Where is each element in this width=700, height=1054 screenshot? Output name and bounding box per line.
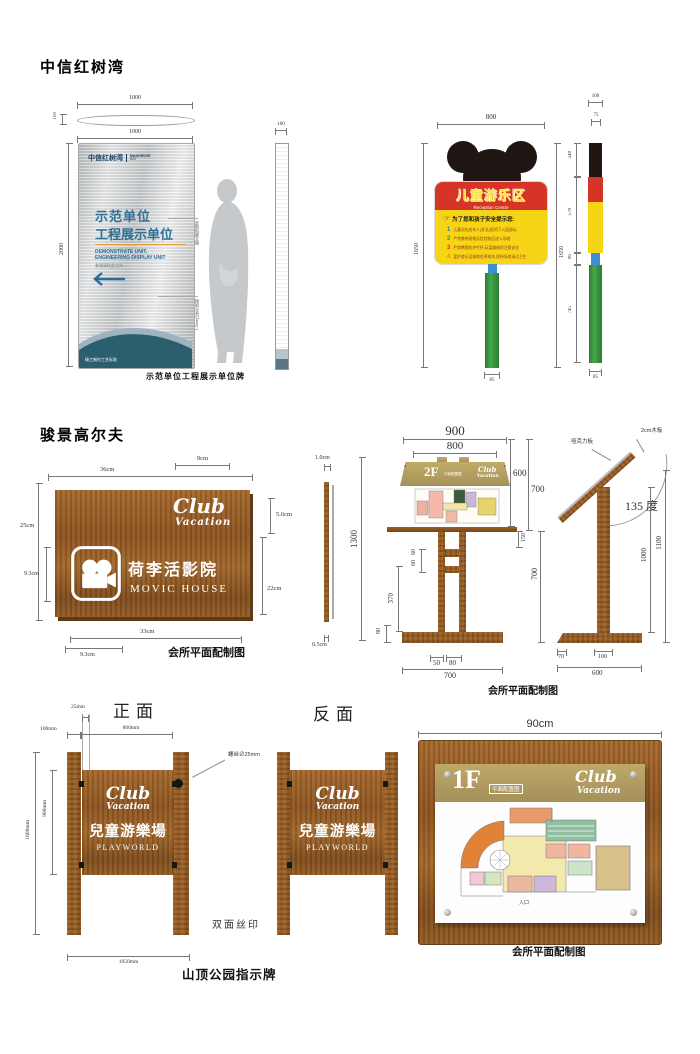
orange-rule	[95, 244, 186, 245]
dim-line	[386, 625, 387, 643]
dim-900mm: 900mm	[43, 800, 49, 817]
sign-post	[67, 752, 81, 935]
dim-9-3cm-left: 9.3cm	[24, 571, 39, 577]
dim-line	[437, 124, 545, 125]
wood-board-label: 2cm木板	[641, 429, 662, 435]
dim-line	[421, 549, 422, 573]
dim-line	[68, 143, 69, 367]
vacation-logo-word: Vacation	[577, 786, 620, 796]
club-logo-word: Club	[575, 767, 617, 786]
1f-header-band: 1F 平面配置图 Club Vacation	[435, 764, 645, 802]
dim-700-bottom: 700	[444, 672, 456, 680]
dim-line	[324, 637, 329, 638]
dim-line	[518, 531, 519, 548]
main-sign-caption: 示范单位工程展示单位牌	[146, 371, 245, 382]
dim-plate-width: 1000	[77, 95, 193, 101]
dim-line	[324, 466, 331, 467]
dim-line	[418, 733, 662, 734]
side-yellow-segment	[588, 202, 603, 253]
sign-en-line2: ENGINEERING DISPLAY UNIT	[95, 255, 166, 261]
park-sign-caption: 山顶公园指示牌	[182, 964, 277, 983]
rule-number: 1	[447, 227, 450, 233]
stand-tabletop	[387, 527, 517, 532]
playworld-cn: 兒童游樂場	[290, 820, 385, 841]
sign-post	[277, 752, 290, 935]
dim-side-75: 75	[586, 113, 606, 118]
dim-9cm: 9cm	[175, 456, 230, 463]
dim-line	[557, 667, 642, 668]
dim-05cm: 0.5cm	[312, 642, 327, 648]
board-screw	[504, 465, 506, 467]
dim-line	[510, 439, 511, 527]
dim-line	[557, 651, 567, 652]
panel-screw	[444, 909, 451, 916]
demonstrate-unit-sign: 中信红树湾 MANGROVE BAY 示范单位 工程展示单位 DEMONSTRA…	[78, 143, 195, 369]
back-view-label: 反面	[313, 700, 359, 725]
movie-camera-icon	[70, 545, 122, 602]
dim-100: 100	[598, 654, 607, 660]
kids-title: 儿童游乐区	[435, 182, 547, 204]
panel-bolt	[172, 862, 177, 868]
dim-line	[576, 177, 577, 253]
dim-line	[588, 102, 603, 103]
vacation-logo-word: Vacation	[290, 802, 385, 812]
floor-2f-label: 2F	[424, 464, 438, 480]
dim-side-width: 100	[273, 122, 289, 127]
movie-house-en: MOVIC HOUSE	[130, 583, 228, 595]
guide-line	[82, 714, 83, 770]
dim-1050mm: 1050mm	[67, 960, 190, 966]
dim-line	[484, 374, 500, 375]
footer-note: 精工制作工艺标准	[85, 357, 117, 363]
dim-line	[528, 439, 529, 531]
left-arrow-icon	[93, 271, 127, 287]
side-red-segment	[588, 177, 603, 202]
dim-700-right2: 700	[531, 568, 539, 580]
stand-crossbar	[445, 566, 459, 573]
guide-line	[89, 714, 90, 770]
dim-seg-248: 248	[568, 151, 573, 159]
floor-1f-label: 1F	[452, 765, 481, 795]
dim-line	[70, 638, 242, 639]
dim-1100: 1100	[656, 536, 663, 550]
dim-line	[67, 956, 190, 957]
playworld-en: PLAYWORLD	[82, 843, 174, 852]
kids-red-band: 儿童游乐区 Reception Centre	[435, 182, 547, 210]
dim-side-base: 85	[586, 375, 605, 380]
dim-line	[361, 457, 362, 641]
dim-plate-thickness: 100	[53, 112, 58, 120]
dim-front-width: 1000	[77, 129, 193, 135]
mangrove-bay-logo: 中信红树湾 MANGROVE BAY	[88, 153, 151, 163]
panel-screw	[630, 771, 637, 778]
dim-line	[81, 734, 173, 735]
lectern-post	[597, 487, 610, 633]
logo-cn: 中信红树湾	[88, 153, 123, 163]
entrance-label: 入口	[519, 899, 529, 906]
side-swoosh-dark	[276, 359, 288, 369]
floor-plan-1f	[448, 806, 633, 908]
section1-title: 中信红树湾	[40, 56, 125, 77]
leader-line	[168, 218, 198, 219]
stand-crossbar	[445, 549, 459, 557]
dim-seg-578: 578	[568, 208, 573, 216]
stand-leg	[438, 532, 445, 632]
dim-side-100: 100	[585, 94, 606, 99]
leader-line	[158, 296, 198, 297]
playworld-panel-back: Club Vacation 兒童游樂場 PLAYWORLD	[290, 770, 385, 875]
club-logo-word: Club	[82, 784, 174, 804]
dim-line	[275, 130, 287, 131]
dim-sign-height: 2000	[59, 243, 65, 255]
hand-icon: ☞	[443, 214, 450, 223]
rule-text: 严禁携带宠物及危险物品进入场地	[453, 237, 510, 242]
vacation-logo-word: Vacation	[477, 474, 499, 479]
dim-70: 70	[558, 654, 564, 660]
side-blue-segment	[591, 253, 600, 265]
playworld-en: PLAYWORLD	[290, 843, 385, 852]
dim-600-base: 600	[592, 670, 603, 677]
dim-22cm: 22cm	[267, 586, 281, 593]
vacation-logo-word: Vacation	[82, 802, 174, 812]
dim-line	[52, 770, 53, 875]
panel-bolt	[383, 862, 388, 868]
panel-bolt	[383, 781, 388, 787]
logo-divider	[126, 154, 127, 162]
club-logo-word: Club	[290, 784, 385, 804]
dim-60a: 60	[411, 549, 417, 555]
dim-900: 900	[403, 424, 507, 437]
stand-header-board: 2F 平面配置图 Club Vacation	[400, 462, 510, 486]
kids-notice-header: 为了您和孩子安全提示您:	[452, 215, 514, 223]
sign-cn-line1: 示范单位	[95, 206, 151, 225]
design-sheet: 中信红树湾 1000 100 1000 2000 中信红树湾 MANGROVE …	[0, 0, 700, 1054]
dim-line	[62, 114, 63, 125]
dim-700-right: 700	[531, 485, 545, 494]
rule-number: 2	[447, 236, 450, 242]
dim-line	[38, 483, 39, 621]
sign-post	[385, 752, 398, 935]
dim-line	[591, 121, 601, 122]
kids-yellow-panel: ☞ 为了您和孩子安全提示您: 1 儿童须在成年人(家长)陪同下入园游玩 2 严禁…	[435, 210, 547, 264]
dim-seg-745: 745	[568, 306, 573, 314]
floor-1f-sub: 平面配置图	[489, 784, 523, 794]
club-logo-word: Club	[173, 494, 225, 518]
rule-text: 儿童须在成年人(家长)陪同下入园游玩	[453, 228, 516, 233]
dim-line	[423, 143, 424, 368]
dim-line	[665, 470, 666, 643]
dim-line	[413, 453, 497, 454]
silk-print-note: 双面丝印	[212, 916, 260, 931]
dim-80b: 80	[449, 660, 456, 667]
mouse-ears-icon	[446, 138, 538, 184]
plank-side-view	[324, 482, 329, 622]
dim-1300: 1300	[350, 530, 359, 548]
lectern-base	[557, 633, 642, 643]
screw-label: 螺丝∅25mm	[228, 753, 260, 759]
dim-line	[65, 648, 123, 649]
dim-line	[46, 547, 47, 602]
dim-line	[576, 253, 577, 265]
dim-line	[270, 498, 271, 534]
dim-80: 80	[376, 628, 382, 634]
stand-base	[402, 632, 503, 643]
rule-number: 3	[447, 245, 450, 251]
dim-line	[430, 657, 444, 658]
dim-line	[556, 143, 557, 368]
dim-line	[576, 265, 577, 363]
dim-60b: 60	[411, 560, 417, 566]
dim-33cm: 33cm	[140, 629, 154, 636]
plate-top-view	[77, 115, 195, 126]
dim-5-6cm: 5.6cm	[276, 512, 292, 519]
club-logo-word: Club	[478, 465, 496, 474]
dim-100mm: 100mm	[40, 727, 57, 733]
front-view-label: 正面	[113, 697, 159, 722]
dim-line	[262, 537, 263, 615]
kids-pole	[485, 273, 499, 368]
dim-line	[540, 531, 541, 643]
movie-house-plaque: Club Vacation 荷李活影院 MOVIC HOUSE	[55, 490, 250, 617]
dim-1600mm: 1600mm	[26, 820, 32, 840]
floor-plan-2f	[413, 486, 501, 526]
playworld-cn: 兒童游樂場	[82, 820, 174, 841]
dim-50: 50	[433, 660, 440, 667]
leader-line	[192, 760, 225, 778]
dim-line	[398, 566, 399, 632]
dim-line	[589, 371, 602, 372]
dim-kids-width: 800	[437, 114, 545, 121]
dim-25mm: 25mm	[71, 705, 85, 711]
dim-25cm: 25cm	[20, 523, 34, 530]
panel-bolt	[287, 781, 292, 787]
dim-150: 150	[521, 533, 527, 542]
board-screw	[404, 465, 406, 467]
dim-line	[650, 487, 651, 633]
screw-head	[174, 779, 183, 788]
angle-135: 135 度	[625, 500, 658, 512]
dim-pole-width: 85	[482, 378, 502, 383]
rule-text: 爱护游乐设施和花草树木,保持场地清洁卫生	[453, 255, 526, 260]
pylon-side-view	[275, 143, 289, 370]
panel-screw	[444, 771, 451, 778]
direction-note: 参观请往此方向	[95, 263, 123, 269]
person-silhouette	[196, 176, 258, 368]
panel-screw	[630, 909, 637, 916]
dim-line	[82, 717, 89, 718]
logo-en2: BAY	[130, 158, 151, 162]
panel-bolt	[287, 862, 292, 868]
dim-36cm: 36cm	[100, 467, 114, 474]
dim-1000: 1000	[641, 548, 648, 562]
dim-600: 600	[513, 469, 527, 478]
dim-line	[67, 734, 81, 735]
plank-backing-line	[332, 485, 334, 619]
playworld-panel-front: Club Vacation 兒童游樂場 PLAYWORLD	[82, 770, 174, 875]
dim-800: 800	[413, 441, 497, 452]
dim-line	[35, 752, 36, 935]
sign-cn-line2: 工程展示单位	[95, 224, 173, 243]
section2-title: 骏景高尔夫	[40, 424, 125, 445]
panel-bolt	[79, 862, 84, 868]
side-swoosh-light	[276, 349, 288, 359]
stand-leg	[459, 532, 466, 632]
dim-370: 370	[388, 593, 395, 604]
panel-bolt	[79, 781, 84, 787]
dim-seg-80: 80	[568, 254, 573, 259]
dim-side-height: 1650	[559, 246, 565, 258]
vacation-logo-word: Vacation	[175, 517, 231, 528]
dim-9-3cm-bottom: 9.3cm	[80, 652, 95, 658]
dim-line	[77, 138, 193, 139]
movie-caption: 会所平面配制图	[168, 644, 245, 660]
1f-board-caption: 会所平面配制图	[512, 944, 586, 959]
dim-kids-height: 1650	[414, 243, 420, 255]
rule-number: 4	[447, 254, 450, 260]
acrylic-label: 哑克力板	[571, 440, 593, 446]
stand-caption: 会所平面配制图	[488, 682, 558, 697]
dim-line	[48, 476, 253, 477]
dim-90cm: 90cm	[418, 719, 662, 730]
dim-line	[446, 657, 462, 658]
1f-white-panel: 1F 平面配置图 Club Vacation	[435, 764, 645, 923]
dim-800mm: 800mm	[89, 726, 173, 732]
movie-house-cn: 荷李活影院	[128, 556, 218, 580]
dim-line	[77, 104, 193, 105]
side-pole-segment	[589, 265, 602, 363]
floor-2f-sub: 平面配置图	[444, 472, 462, 477]
rule-text: 严禁攀爬防护栏杆,玩耍器械时注意安全	[453, 246, 519, 251]
dim-line	[175, 465, 230, 466]
1f-board-frame: 1F 平面配置图 Club Vacation	[418, 740, 662, 945]
dim-line	[594, 651, 613, 652]
dim-1cm: 1.0cm	[315, 455, 330, 461]
side-ears-segment	[589, 143, 602, 177]
kids-sign-board: 儿童游乐区 Reception Centre ☞ 为了您和孩子安全提示您: 1 …	[435, 182, 547, 264]
dim-line	[576, 143, 577, 177]
dim-line	[402, 669, 503, 670]
